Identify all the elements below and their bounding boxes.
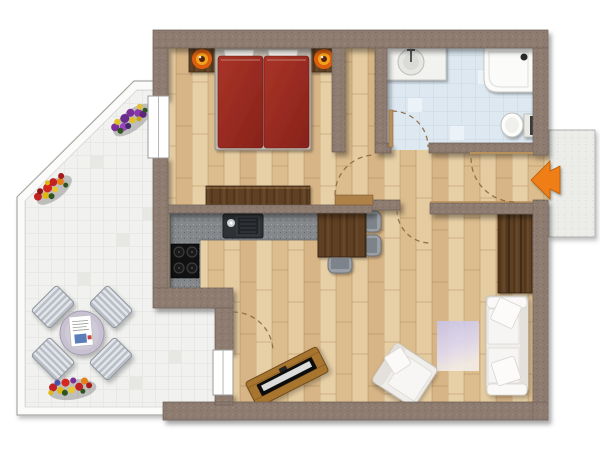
magazine: [69, 315, 94, 347]
toilet: [501, 113, 533, 137]
bathroom-door-leaf: [389, 110, 393, 147]
sink-vanity: [386, 47, 446, 80]
sofa: [486, 296, 528, 395]
rug: [437, 321, 479, 371]
shower-drain-icon: [521, 54, 528, 61]
cooktop: [171, 244, 199, 278]
terrace-door: [213, 350, 233, 395]
floorplan-canvas: [0, 0, 600, 450]
dresser: [206, 186, 310, 205]
kitchen-sink: [223, 214, 263, 238]
bedroom-window: [148, 96, 169, 158]
double-bed: [215, 47, 311, 150]
duvet-right: [264, 56, 309, 148]
wardrobe: [498, 213, 532, 293]
duvet-left: [218, 56, 263, 148]
lamp-right: [314, 49, 334, 69]
shower: [484, 47, 533, 92]
dining-table: [318, 207, 366, 257]
pass-through-ledge: [335, 195, 373, 205]
lamp-left: [192, 49, 212, 69]
